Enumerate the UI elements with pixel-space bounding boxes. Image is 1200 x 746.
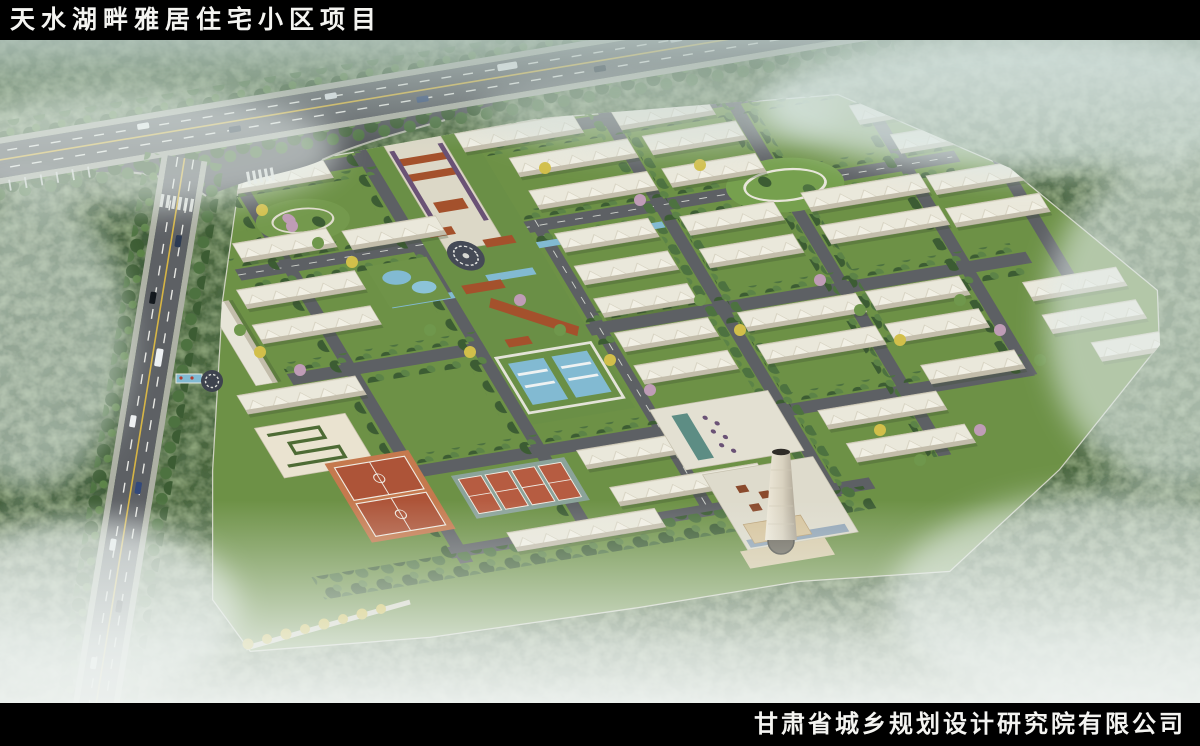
aerial-rendering bbox=[0, 0, 1200, 746]
footer-bar: 甘肃省城乡规划设计研究院有限公司 bbox=[0, 703, 1200, 746]
company-name: 甘肃省城乡规划设计研究院有限公司 bbox=[754, 703, 1186, 746]
rendering-board: 天水湖畔雅居住宅小区项目 甘肃省城乡规划设计研究院有限公司 bbox=[0, 0, 1200, 746]
page-title: 天水湖畔雅居住宅小区项目 bbox=[10, 0, 382, 40]
title-bar: 天水湖畔雅居住宅小区项目 bbox=[0, 0, 1200, 40]
